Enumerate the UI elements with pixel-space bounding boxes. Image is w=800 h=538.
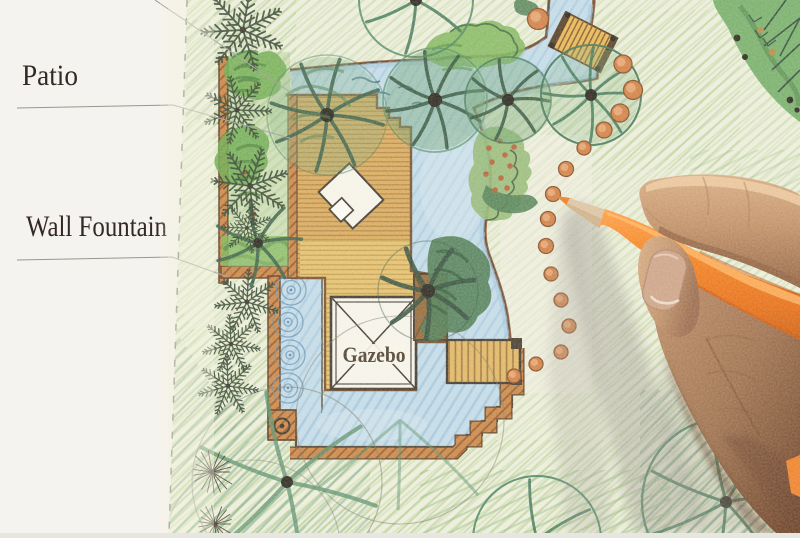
svg-text:Patio: Patio — [22, 59, 78, 92]
svg-text:Wall Fountain: Wall Fountain — [26, 210, 167, 243]
